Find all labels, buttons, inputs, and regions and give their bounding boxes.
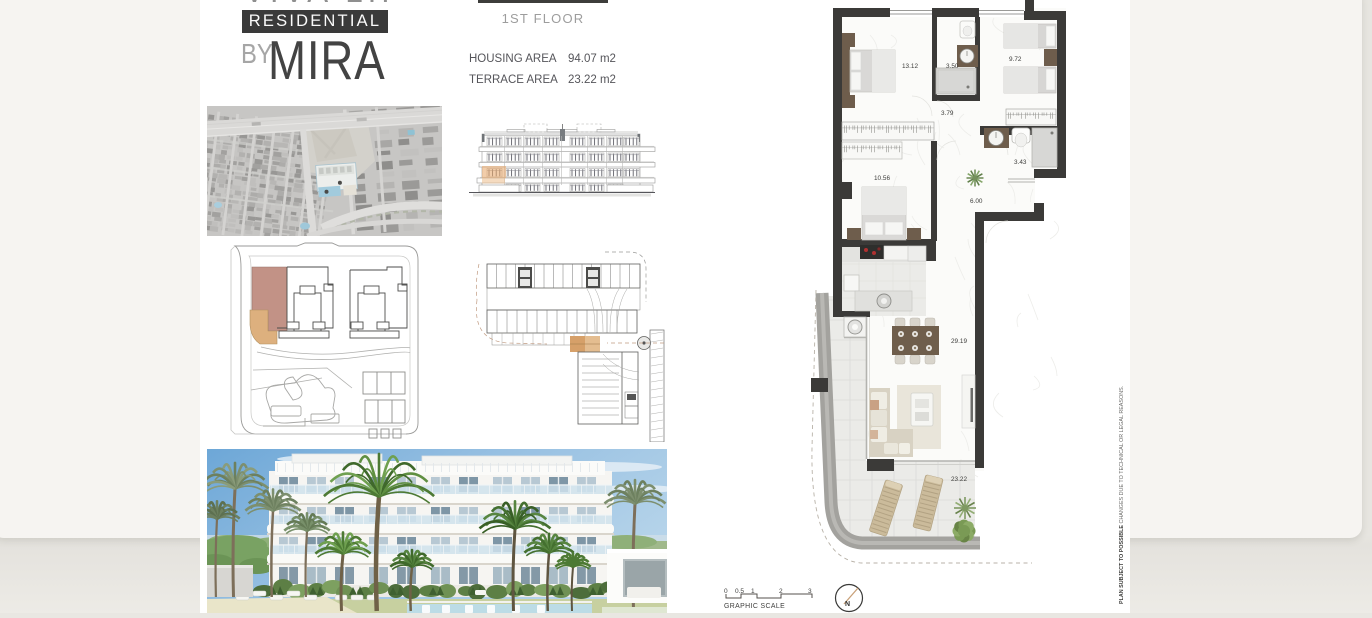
svg-text:3.79: 3.79 <box>941 110 954 117</box>
svg-text:23.22: 23.22 <box>951 476 967 483</box>
svg-text:13.12: 13.12 <box>902 63 918 70</box>
svg-text:29.19: 29.19 <box>951 338 967 345</box>
svg-text:GRAPHIC SCALE: GRAPHIC SCALE <box>724 603 785 610</box>
svg-text:9.72: 9.72 <box>1009 56 1022 63</box>
svg-text:6.00: 6.00 <box>970 198 983 205</box>
svg-text:3.43: 3.43 <box>1014 159 1027 166</box>
svg-text:0: 0 <box>724 588 728 595</box>
svg-text:N: N <box>845 601 850 608</box>
svg-text:3.50: 3.50 <box>946 63 959 70</box>
svg-text:10.56: 10.56 <box>874 175 890 182</box>
